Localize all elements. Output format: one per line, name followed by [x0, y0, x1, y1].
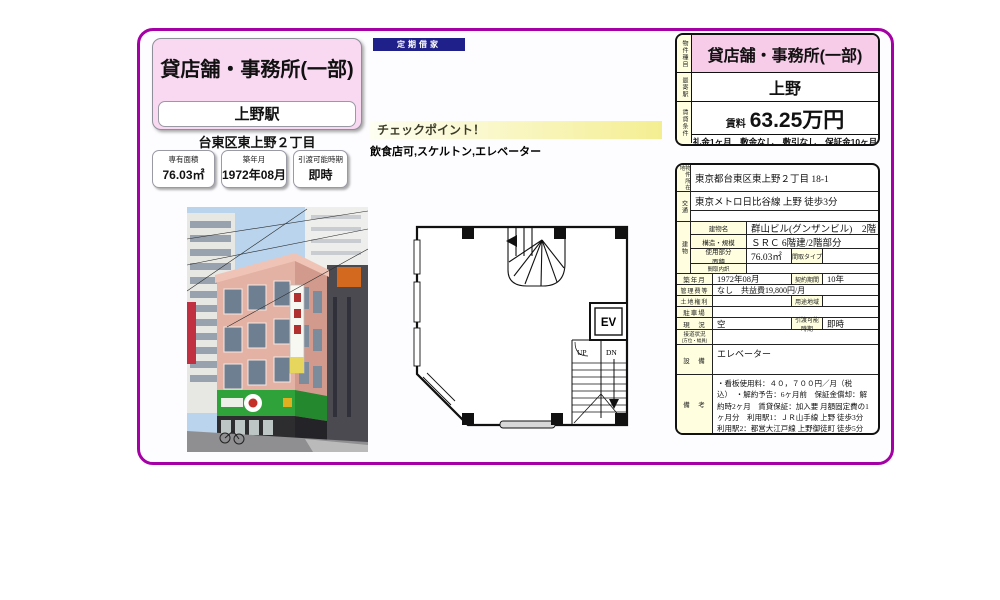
fees-label: 管理費等 — [677, 285, 713, 295]
detail-table: 物件所在地 東京都台東区東上野２丁目 18-1 交通 東京メトロ日比谷線 上野 … — [675, 163, 880, 435]
address-value: 東京都台東区東上野２丁目 18-1 — [691, 165, 878, 191]
fact-built-value: 1972年08月 — [222, 166, 286, 183]
address-short: 台東区東上野２丁目 — [152, 132, 362, 151]
stair-dn-label: DN — [606, 348, 617, 357]
road-value — [713, 330, 878, 344]
building-photo — [187, 207, 368, 452]
row-parking: 駐車場 — [677, 307, 878, 318]
summary-terms-label: 賃貸条件 — [681, 109, 687, 137]
equipment-value: エレベーター — [713, 345, 878, 374]
access-label: 交通 — [681, 200, 687, 214]
fact-handover: 引渡可能時期 即時 — [293, 150, 348, 188]
fact-handover-label: 引渡可能時期 — [294, 151, 347, 165]
layout-detail-label: 間取内訳 — [691, 264, 747, 273]
summary-station-label: 最寄駅 — [681, 77, 687, 98]
property-type-title: 貸店舗・事務所(一部) — [153, 39, 361, 82]
fees-value: なし 共益費19,800円/月 — [713, 285, 878, 295]
fact-built-label: 築年月 — [222, 151, 286, 165]
built-value: 1972年08月 — [713, 274, 791, 284]
station-name: 上野駅 — [158, 101, 356, 127]
subrow-layout-detail: 間取内訳 — [691, 264, 878, 273]
row-status: 現 況 空 引渡可能 時期 即時 — [677, 318, 878, 330]
fact-built: 築年月 1972年08月 — [221, 150, 287, 188]
road-label-1: 接道状況 — [683, 330, 705, 338]
row-equipment: 設 備 エレベーター — [677, 345, 878, 375]
fact-handover-value: 即時 — [294, 166, 347, 183]
row-land-rights: 土地権利 用途地域 — [677, 296, 878, 307]
handover-label-1: 引渡可能 — [795, 315, 819, 324]
road-label-2: (方位・幅員) — [682, 338, 708, 344]
area-label-1: 使用部分 — [706, 246, 732, 256]
rent-label: 賃料 — [726, 115, 746, 130]
contract-value: 10年 — [823, 274, 878, 284]
elevator-label: EV — [601, 317, 617, 329]
equipment-label: 設 備 — [677, 345, 713, 374]
summary-type-label: 物件種目 — [681, 40, 687, 68]
fact-area-value: 76.03㎡ — [153, 166, 214, 183]
contract-label: 契約期間 — [791, 274, 823, 284]
subrow-area: 使用部分 面積 76.03㎡ 間取タイプ — [691, 249, 878, 264]
building-name-label: 建物名 — [691, 222, 747, 234]
flyer-frame: 貸店舗・事務所(一部) 上野駅 台東区東上野２丁目 専有面積 76.03㎡ 築年… — [137, 28, 894, 465]
row-road: 接道状況 (方位・幅員) — [677, 330, 878, 345]
notes-label: 備 考 — [677, 375, 713, 433]
checkpoint-bar: チェックポイント！ — [370, 121, 662, 139]
land-rights-label: 土地権利 — [677, 296, 713, 306]
access-value: 東京メトロ日比谷線 上野 徒歩3分 — [691, 192, 878, 211]
row-building: 建物 建物名 群山ビル(グンザンビル) 2階 構造・規模 ＳＲＣ 6階建/2階部… — [677, 222, 878, 274]
summary-station-value: 上野 — [692, 73, 878, 101]
row-notes: 備 考 ・看板使用料：４０，７００円／月（税込） ・解約予告：6ヶ月前 保証金償… — [677, 375, 878, 433]
property-flyer: 貸店舗・事務所(一部) 上野駅 台東区東上野２丁目 専有面積 76.03㎡ 築年… — [0, 0, 1000, 600]
address-label: 物件所在地 — [678, 165, 689, 191]
layout-type-value — [823, 249, 878, 263]
access-value-2 — [691, 211, 878, 221]
built-label: 築年月 — [677, 274, 713, 284]
fact-area-label: 専有面積 — [153, 151, 214, 165]
building-name-value: 群山ビル(グンザンビル) 2階 — [747, 222, 878, 234]
checkpoint-features: 飲食店可,スケルトン,エレベーター — [370, 143, 541, 159]
property-type-card: 貸店舗・事務所(一部) 上野駅 — [152, 38, 362, 130]
handover-value: 即時 — [823, 318, 878, 329]
row-fees: 管理費等 なし 共益費19,800円/月 — [677, 285, 878, 296]
summary-type-value: 貸店舗・事務所(一部) — [692, 35, 878, 72]
row-address: 物件所在地 東京都台東区東上野２丁目 18-1 — [677, 165, 878, 192]
layout-detail-value — [747, 264, 878, 273]
zoning-value — [823, 296, 878, 306]
layout-type-label: 間取タイプ — [791, 249, 823, 263]
parking-label: 駐車場 — [677, 307, 713, 317]
zoning-label: 用途地域 — [791, 296, 823, 306]
row-access: 交通 東京メトロ日比谷線 上野 徒歩3分 — [677, 192, 878, 222]
area-value: 76.03㎡ — [747, 249, 791, 263]
summary-row-terms: 賃貸条件 賃料 63.25万円 礼金1ヶ月 敷金なし 敷引なし 保証金10ヶ月 — [677, 102, 878, 143]
stair-up-label: UP — [577, 348, 587, 357]
status-label: 現 況 — [677, 318, 713, 329]
summary-row-type: 物件種目 貸店舗・事務所(一部) — [677, 35, 878, 73]
checkpoint-title: チェックポイント！ — [370, 123, 485, 137]
row-built: 築年月 1972年08月 契約期間 10年 — [677, 274, 878, 285]
fact-area: 専有面積 76.03㎡ — [152, 150, 215, 188]
notes-value: ・看板使用料：４０，７００円／月（税込） ・解約予告：6ヶ月前 保証金償却：解約… — [713, 375, 878, 433]
structure-value: ＳＲＣ 6階建/2階部分 — [747, 235, 878, 248]
tenancy-badge: 定期借家 — [373, 38, 465, 51]
rent-value: 63.25万円 — [750, 104, 845, 134]
summary-box: 物件種目 貸店舗・事務所(一部) 最寄駅 上野 賃貸条件 賃料 63.25万円 … — [675, 33, 880, 146]
land-rights-value — [713, 296, 791, 306]
summary-row-station: 最寄駅 上野 — [677, 73, 878, 102]
building-label: 建物 — [681, 241, 687, 255]
status-value: 空 — [713, 318, 791, 329]
subrow-building-name: 建物名 群山ビル(グンザンビル) 2階 — [691, 222, 878, 235]
floor-plan: EV UP DN — [405, 218, 660, 446]
terms-detail: 礼金1ヶ月 敷金なし 敷引なし 保証金10ヶ月 — [692, 134, 878, 146]
